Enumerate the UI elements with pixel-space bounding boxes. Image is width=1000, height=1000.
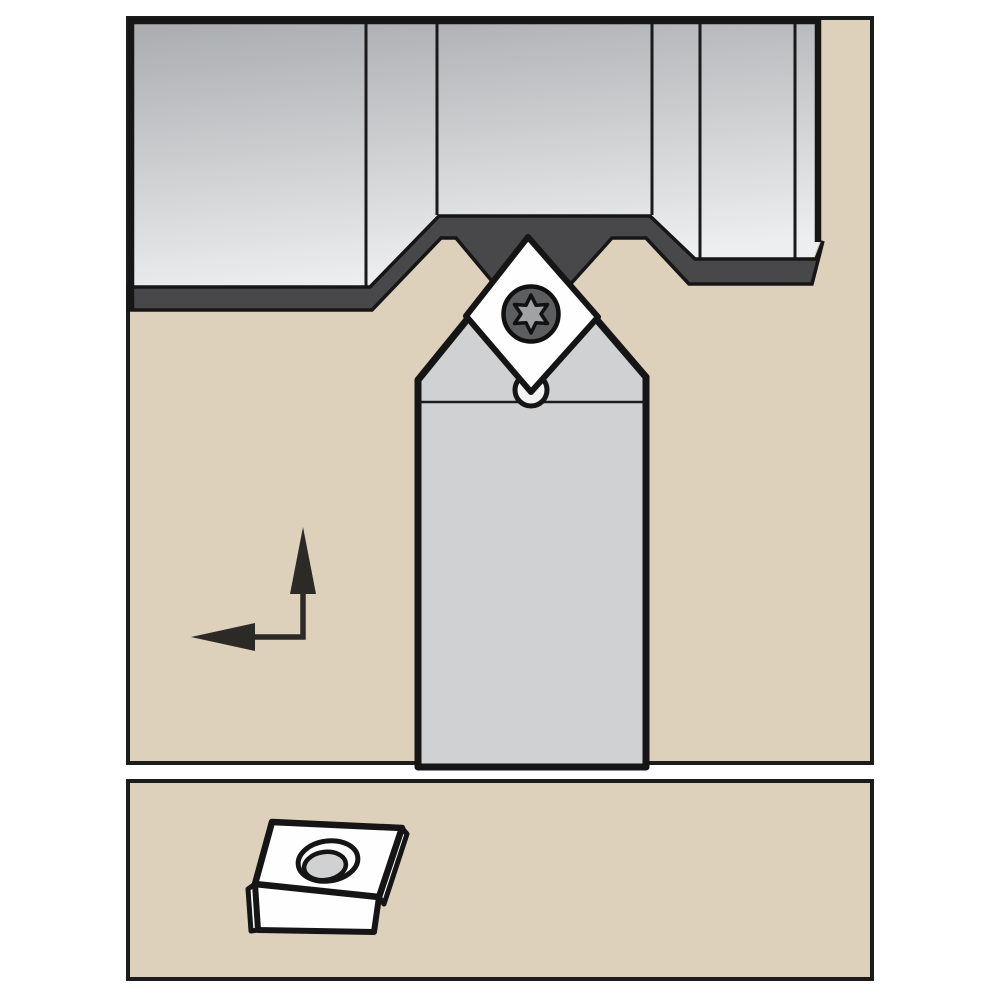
shape-root [128, 18, 872, 979]
bottom-panel [128, 781, 872, 979]
page [0, 0, 1000, 1000]
toolholder-illustration [0, 0, 1000, 1000]
